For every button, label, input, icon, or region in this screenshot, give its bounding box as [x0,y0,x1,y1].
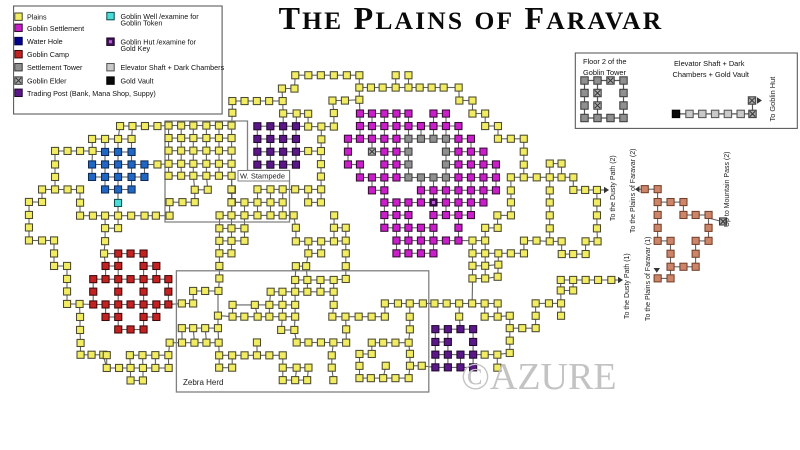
svg-text:To the Plains of Faravar (2): To the Plains of Faravar (2) [630,149,637,233]
svg-text:To the Dusty Path (2): To the Dusty Path (2) [610,155,617,221]
svg-text:©AZURE: ©AZURE [461,356,617,398]
svg-text:Goblin Token: Goblin Token [121,19,163,28]
svg-text:Up to Mountain Pass (2): Up to Mountain Pass (2) [724,152,731,227]
svg-text:To the Plains of Faravar (1): To the Plains of Faravar (1) [645,237,652,321]
svg-text:Gold Key: Gold Key [121,44,151,53]
svg-text:Goblin Camp: Goblin Camp [27,50,69,59]
svg-text:To the Dusty Path (1): To the Dusty Path (1) [624,253,631,319]
svg-text:THE PLAINS OF FARAVAR: THE PLAINS OF FARAVAR [279,0,664,36]
svg-text:Elevator Shaft + Dark Chambers: Elevator Shaft + Dark Chambers [121,63,225,72]
svg-text:Chambers + Gold Vault: Chambers + Gold Vault [673,70,749,79]
svg-text:W. Stampede: W. Stampede [240,172,285,181]
svg-text:Floor 2 of the: Floor 2 of the [583,57,627,66]
svg-text:Goblin Tower: Goblin Tower [583,68,627,77]
svg-text:Goblin Elder: Goblin Elder [27,77,67,86]
svg-text:Elevator Shaft + Dark: Elevator Shaft + Dark [674,59,745,68]
svg-text:Plains: Plains [27,13,47,22]
svg-text:Goblin Settlement: Goblin Settlement [27,24,84,33]
svg-text:Settlement Tower: Settlement Tower [27,63,83,72]
svg-text:Water Hole: Water Hole [27,37,63,46]
svg-text:Zebra Herd: Zebra Herd [183,378,223,387]
svg-text:Gold Vault: Gold Vault [121,77,154,86]
svg-text:To Goblin Hut: To Goblin Hut [768,77,777,122]
svg-text:Trading Post (Bank, Mana Shop,: Trading Post (Bank, Mana Shop, Suppy) [27,89,156,98]
